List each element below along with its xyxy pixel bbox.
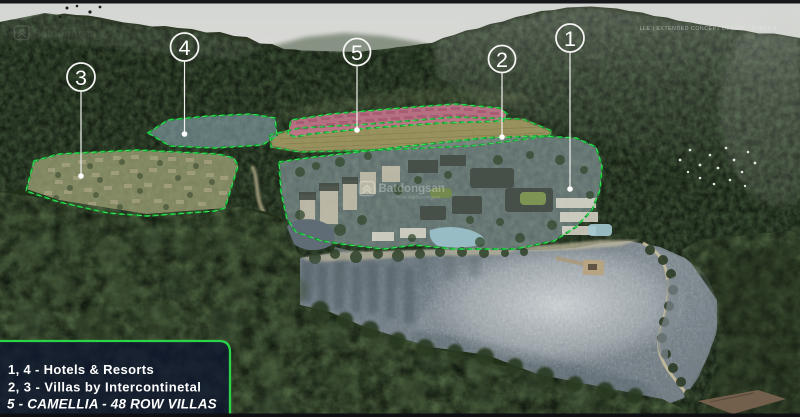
svg-text:1, 4 - Hotels & Resorts: 1, 4 - Hotels & Resorts — [8, 362, 154, 377]
svg-text:5 - CAMELLIA - 48 ROW VILLAS: 5 - CAMELLIA - 48 ROW VILLAS — [7, 397, 217, 412]
svg-text:1: 1 — [564, 27, 576, 51]
svg-text:3: 3 — [75, 66, 87, 90]
svg-text:Batdongsan: Batdongsan — [379, 183, 445, 195]
svg-text:Batdongsan: Batdongsan — [33, 28, 97, 40]
svg-text:LLE | EXTENDED CONCEPT DESIGN: LLE | EXTENDED CONCEPT DESIGN - STAGE 2 — [640, 26, 777, 32]
svg-text:2, 3 - Villas by Intercontine: 2, 3 - Villas by Intercontinetal — [8, 380, 201, 395]
svg-text:5: 5 — [351, 41, 363, 65]
svg-text:2: 2 — [496, 48, 508, 72]
svg-text:com.vn cua Batdongsan: com.vn cua Batdongsan — [392, 195, 441, 200]
svg-text:4: 4 — [179, 36, 191, 60]
